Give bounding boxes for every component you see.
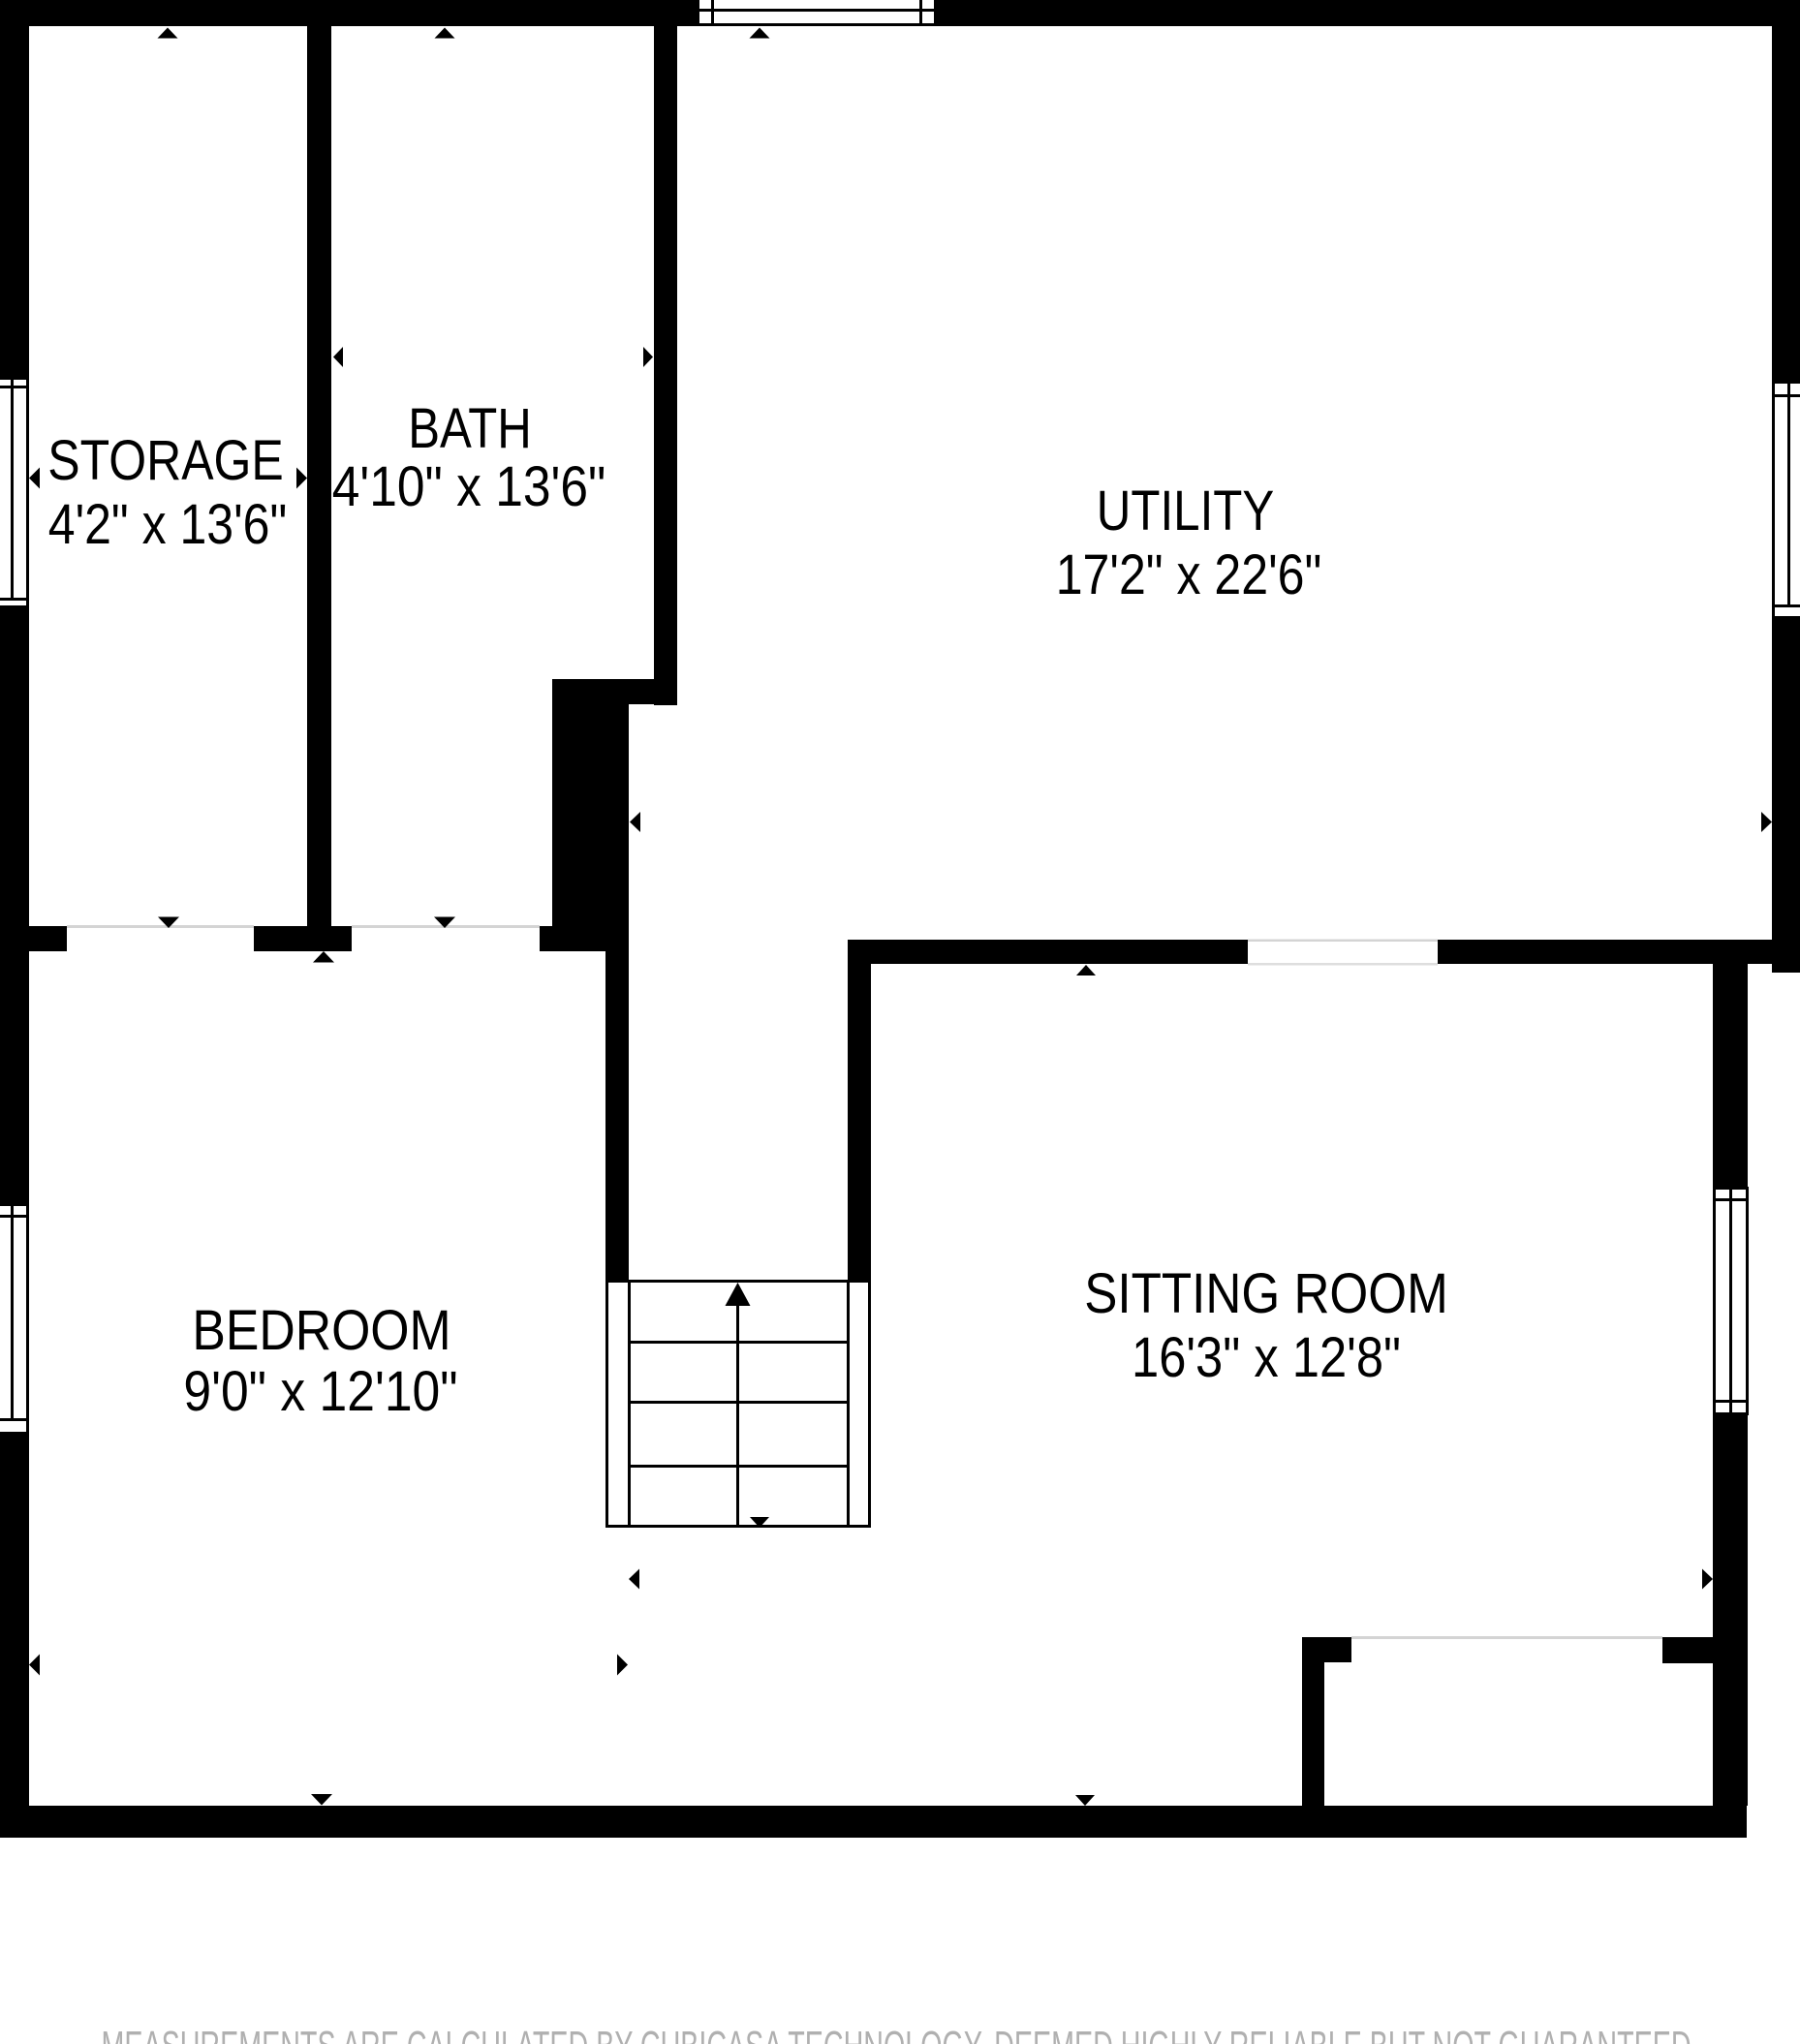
svg-text:MEASUREMENTS ARE CALCULATED BY: MEASUREMENTS ARE CALCULATED BY CUBICASA … bbox=[102, 2023, 1699, 2044]
svg-text:BEDROOM: BEDROOM bbox=[192, 1299, 450, 1362]
svg-text:4'2" x 13'6": 4'2" x 13'6" bbox=[48, 493, 288, 556]
svg-text:4'10" x 13'6": 4'10" x 13'6" bbox=[332, 455, 606, 518]
svg-text:16'3" x 12'8": 16'3" x 12'8" bbox=[1132, 1326, 1401, 1389]
svg-text:17'2" x 22'6": 17'2" x 22'6" bbox=[1056, 543, 1322, 606]
svg-text:SITTING ROOM: SITTING ROOM bbox=[1084, 1262, 1448, 1325]
svg-text:BATH: BATH bbox=[408, 397, 532, 460]
svg-text:STORAGE: STORAGE bbox=[47, 429, 284, 492]
svg-text:UTILITY: UTILITY bbox=[1097, 480, 1275, 542]
svg-text:9'0" x 12'10": 9'0" x 12'10" bbox=[183, 1360, 457, 1423]
